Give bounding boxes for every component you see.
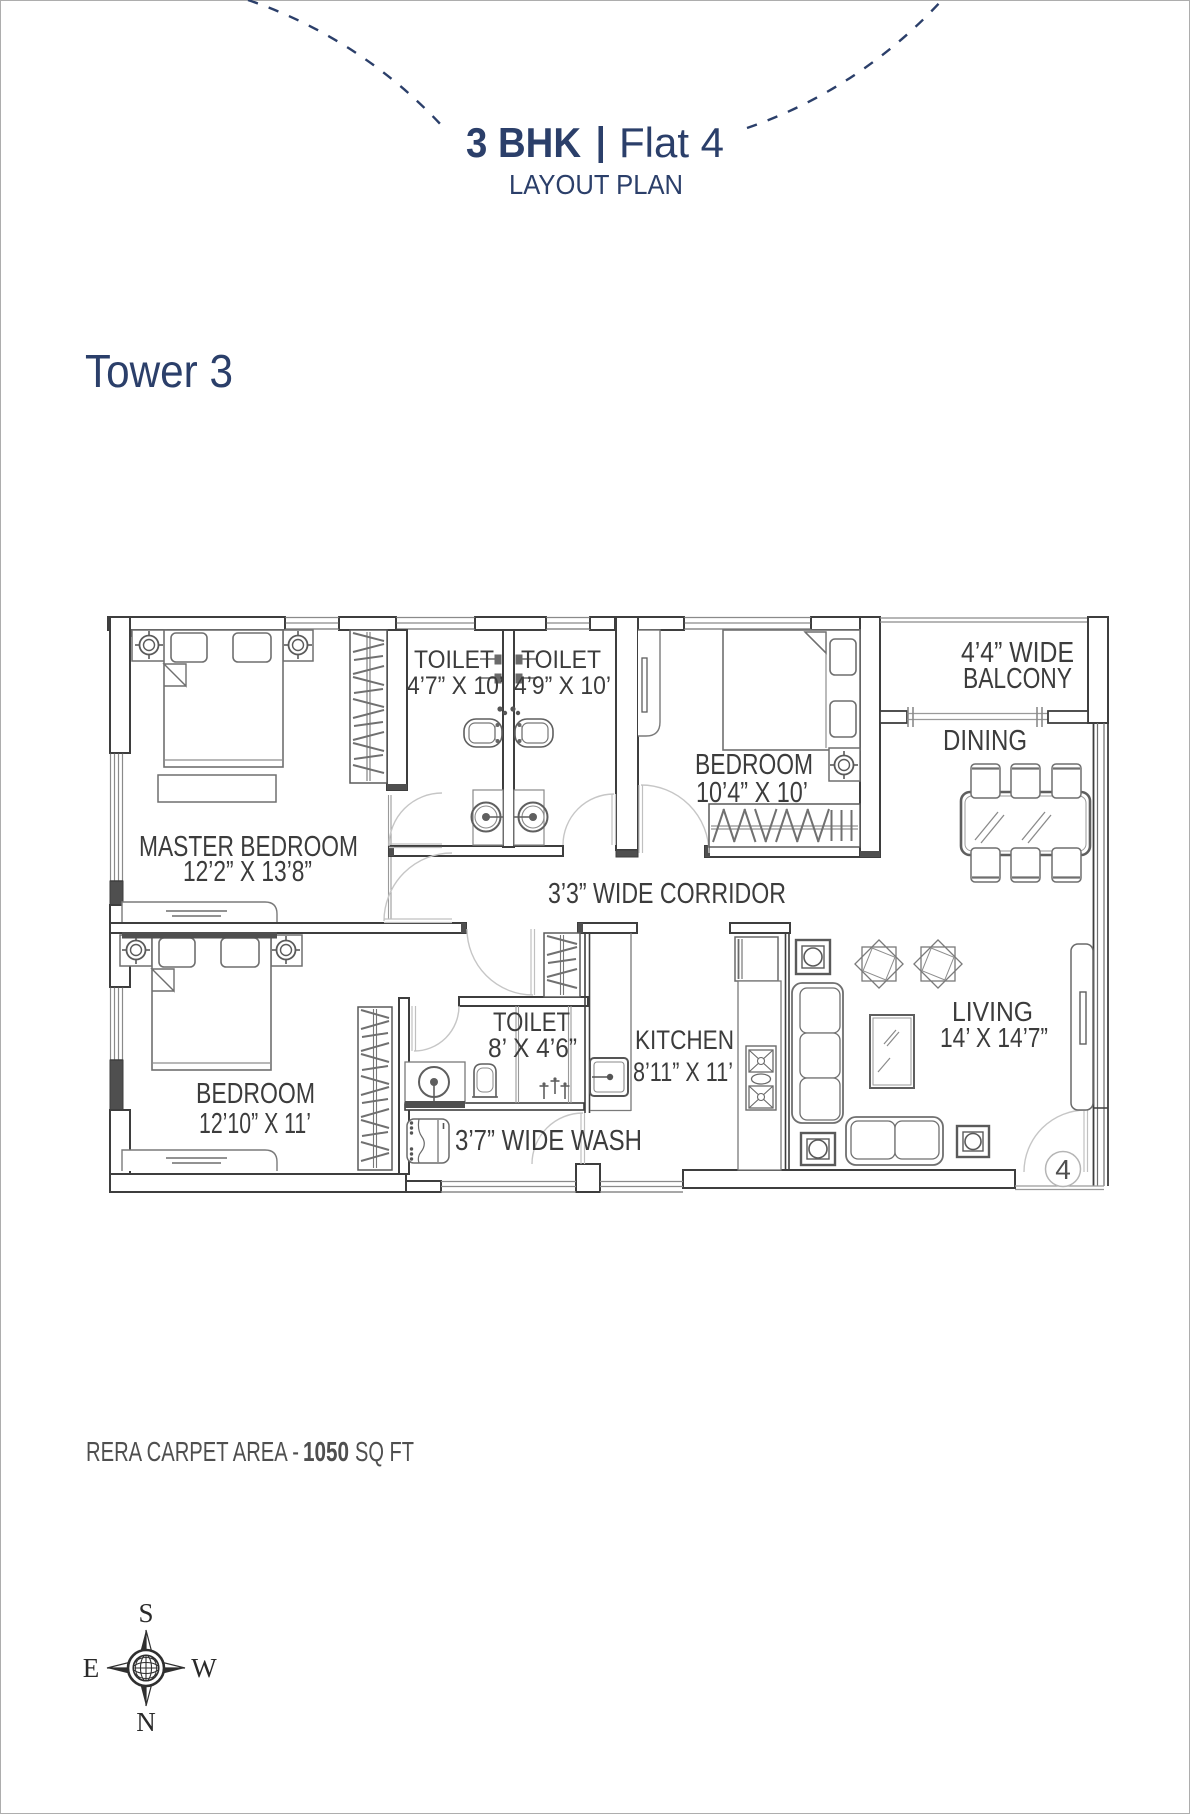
svg-text:BALCONY: BALCONY (963, 663, 1072, 695)
svg-text:3’3” WIDE CORRIDOR: 3’3” WIDE CORRIDOR (548, 878, 786, 910)
svg-text:Tower 3: Tower 3 (85, 345, 233, 397)
svg-text:1050: 1050 (303, 1436, 349, 1467)
svg-text:DINING: DINING (943, 725, 1027, 757)
svg-text:Flat 4: Flat 4 (619, 119, 724, 166)
svg-text:W: W (191, 1653, 217, 1683)
svg-text:E: E (83, 1653, 100, 1683)
svg-text:RERA CARPET AREA -: RERA CARPET AREA - (86, 1436, 299, 1467)
svg-text:10’4” X 10’: 10’4” X 10’ (696, 777, 808, 809)
svg-text:4’7” X 10’: 4’7” X 10’ (407, 672, 504, 700)
svg-text:N: N (136, 1707, 156, 1737)
svg-text:14’ X 14’7”: 14’ X 14’7” (940, 1022, 1048, 1053)
svg-text:LAYOUT PLAN: LAYOUT PLAN (509, 169, 683, 200)
svg-text:S: S (138, 1598, 153, 1628)
svg-text:3 BHK: 3 BHK (466, 119, 581, 166)
svg-text:12’10” X 11’: 12’10” X 11’ (199, 1108, 311, 1140)
svg-text:4’9” X 10’: 4’9” X 10’ (514, 672, 611, 700)
svg-text:TOILET: TOILET (521, 646, 601, 674)
svg-text:8’ X 4’6”: 8’ X 4’6” (488, 1033, 577, 1063)
svg-text:3’7” WIDE WASH: 3’7” WIDE WASH (455, 1125, 642, 1157)
svg-text:BEDROOM: BEDROOM (196, 1078, 315, 1110)
svg-text:SQ FT: SQ FT (355, 1436, 414, 1467)
svg-text:TOILET: TOILET (414, 646, 494, 674)
svg-text:12’2” X 13’8”: 12’2” X 13’8” (183, 856, 312, 888)
svg-text:4: 4 (1055, 1154, 1071, 1185)
svg-text:KITCHEN: KITCHEN (635, 1025, 734, 1055)
svg-text:8’11” X 11’: 8’11” X 11’ (633, 1057, 733, 1087)
